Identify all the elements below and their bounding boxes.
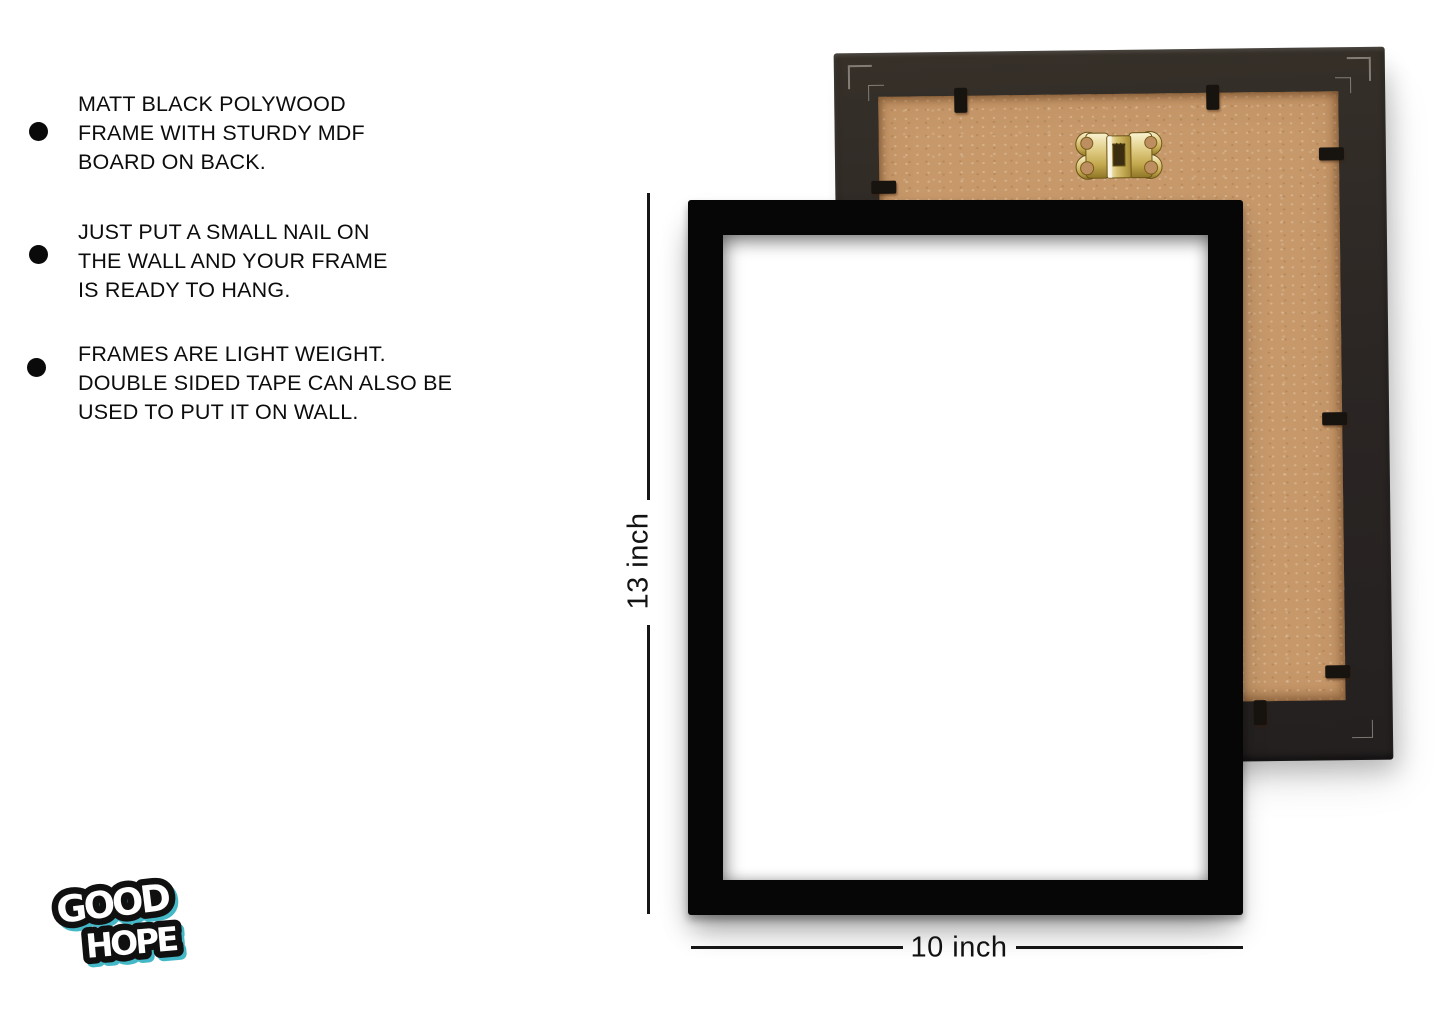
feature-line: USED TO PUT IT ON WALL. [78,398,452,427]
feature-text: MATT BLACK POLYWOOD FRAME WITH STURDY MD… [78,90,365,177]
feature-text: FRAMES ARE LIGHT WEIGHT. DOUBLE SIDED TA… [78,340,452,427]
width-dimension-line [1016,946,1243,949]
brand-logo: GOOD HOPE GOOD HOPE GOOD HOPE [46,870,202,976]
frame-front-view [688,200,1243,915]
height-dimension-label: 13 inch [623,512,656,609]
mounting-clip [954,88,967,113]
feature-line: FRAME WITH STURDY MDF [78,119,365,148]
feature-line: THE WALL AND YOUR FRAME [78,247,388,276]
height-dimension-line [647,625,650,914]
mounting-clip [1319,147,1344,160]
width-dimension-line [691,946,903,949]
feature-text: JUST PUT A SMALL NAIL ON THE WALL AND YO… [78,218,388,305]
feature-line: JUST PUT A SMALL NAIL ON [78,218,388,247]
feature-line: IS READY TO HANG. [78,276,388,305]
feature-line: BOARD ON BACK. [78,148,365,177]
width-dimension-label: 10 inch [910,932,1007,965]
feature-line: FRAMES ARE LIGHT WEIGHT. [78,340,452,369]
corner-joint-mark [1335,77,1351,93]
bullet-dot-icon [29,245,48,264]
mounting-clip [1322,412,1347,425]
logo-word-hope: HOPE [84,919,179,966]
hanging-hook [1075,129,1164,180]
frame-opening [723,235,1208,880]
mounting-clip [1206,85,1219,110]
mounting-clip [1325,665,1350,678]
mounting-clip [871,181,896,194]
corner-joint-mark [1352,720,1373,738]
corner-joint-mark [868,85,884,101]
mounting-clip [1254,700,1267,725]
bullet-dot-icon [29,122,48,141]
bullet-dot-icon [27,358,46,377]
feature-line: MATT BLACK POLYWOOD [78,90,365,119]
height-dimension-line [647,193,650,500]
feature-line: DOUBLE SIDED TAPE CAN ALSO BE [78,369,452,398]
